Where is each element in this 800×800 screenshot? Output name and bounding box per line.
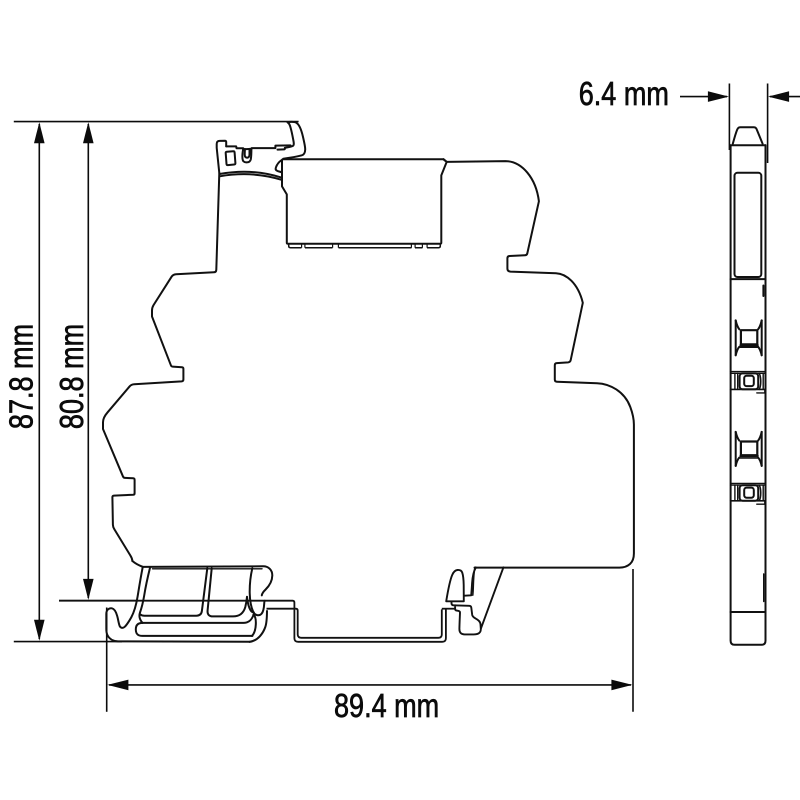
svg-text:6.4 mm: 6.4 mm: [579, 77, 669, 113]
svg-text:89.4 mm: 89.4 mm: [334, 689, 439, 725]
svg-text:87.8 mm: 87.8 mm: [4, 324, 40, 429]
svg-text:80.8 mm: 80.8 mm: [55, 324, 91, 429]
